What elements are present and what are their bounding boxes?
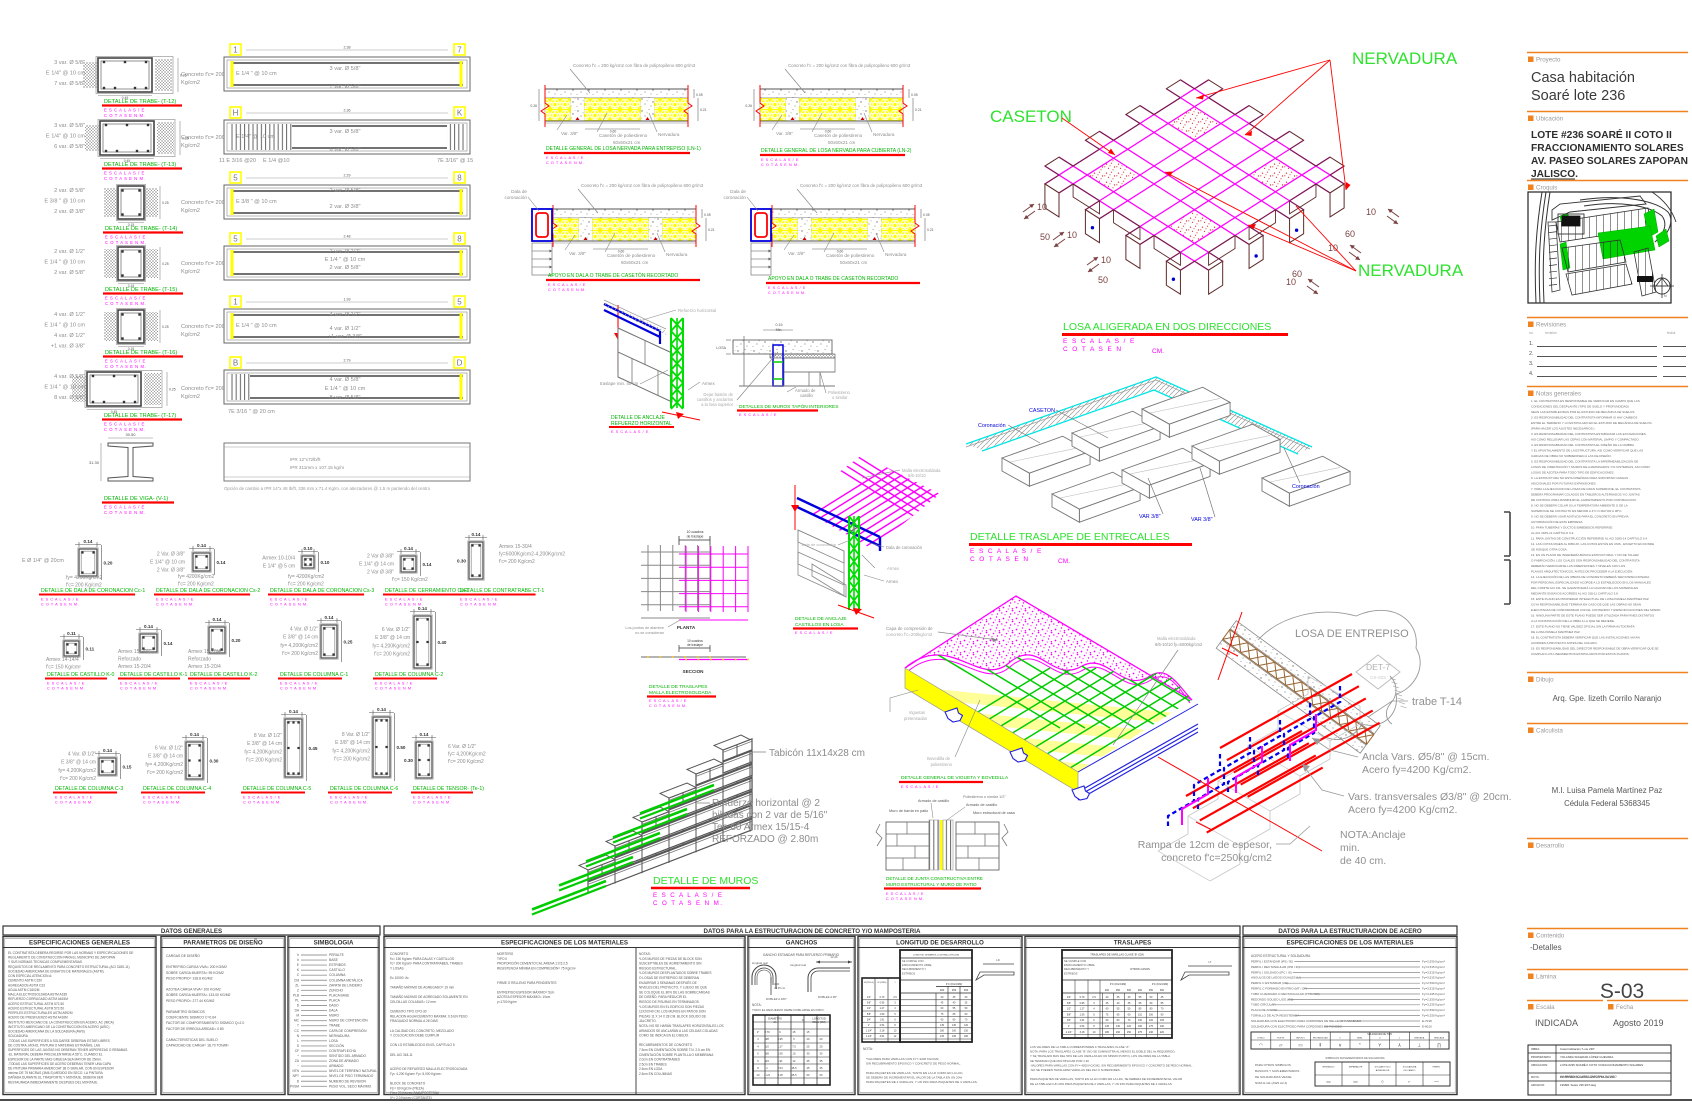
- svg-text:3.18: 3.18: [880, 1030, 885, 1033]
- svg-text:CON ESPECIAL ATENCION A:: CON ESPECIAL ATENCION A:: [8, 974, 52, 978]
- svg-text:RECUBRIMIENTO Y: RECUBRIMIENTO Y: [1064, 967, 1089, 971]
- svg-text:1/2": 1/2": [1067, 1008, 1071, 1011]
- svg-text:DETALLE DE CASTILLO K-2: DETALLE DE CASTILLO K-2: [190, 672, 257, 678]
- svg-text:6/6-10/10: 6/6-10/10: [908, 473, 926, 478]
- svg-text:DEBERA PROGRAMAR COLADOS EN TA: DEBERA PROGRAMAR COLADOS EN TABLEROS ALT…: [1531, 493, 1640, 497]
- svg-text:DEBERÁN VERIFICARSE LAS DIMEN: DEBERÁN VERIFICARSE LAS DIMENSIONES Y NI…: [1531, 564, 1625, 568]
- svg-text:PARA PAQUETES DE 2 VARILLAS, Y: PARA PAQUETES DE 2 VARILLAS, Y UN 33% PA…: [866, 1080, 978, 1084]
- svg-text:Croquis: Croquis: [1536, 185, 1557, 192]
- svg-text:PARAMETRO SISMICOS: PARAMETRO SISMICOS: [166, 1010, 205, 1014]
- svg-text:SENTIDO DEL ARMADO: SENTIDO DEL ARMADO: [329, 1054, 367, 1058]
- svg-text:10 cuadros: 10 cuadros: [687, 530, 704, 534]
- svg-text:REFUERZO CORRUGADO ASTM A615M: REFUERZO CORRUGADO ASTM A615M: [8, 997, 68, 1001]
- svg-text:110: 110: [1138, 1013, 1143, 1016]
- svg-text:C O T A S E N M.: C O T A S E N M.: [548, 288, 586, 292]
- svg-text:30.50: 30.50: [125, 432, 136, 437]
- svg-text:4 var. Ø 1/2": 4 var. Ø 1/2": [330, 326, 361, 332]
- svg-text:Ø (CMS): Ø (CMS): [878, 982, 887, 984]
- svg-text:3/8": 3/8": [1067, 1002, 1071, 1005]
- svg-text:E-6010: E-6010: [1422, 1024, 1432, 1028]
- svg-text:fy= 4,200Kg/cm2: fy= 4,200Kg/cm2: [448, 752, 486, 758]
- svg-text:CON LO ESTABLECIDO EN EL CAPIT: CON LO ESTABLECIDO EN EL CAPITULO 5: [390, 1043, 455, 1047]
- svg-text:CM.: CM.: [1058, 558, 1070, 565]
- svg-text:7 var. Ø 5/8": 7 var. Ø 5/8": [330, 84, 361, 90]
- svg-text:S: S: [297, 1044, 299, 1048]
- svg-text:CORDO: CORDO: [1257, 1037, 1265, 1039]
- svg-text:ACORDES A PROYECTO ANTES DEL C: ACORDES A PROYECTO ANTES DEL COLADO.: [1531, 641, 1598, 645]
- svg-text:Ancla Vars. Ø5/8" @ 15cm.: Ancla Vars. Ø5/8" @ 15cm.: [1362, 751, 1489, 763]
- svg-text:C O T A S E N M.: C O T A S E N M.: [41, 603, 79, 607]
- svg-text:8 var. Ø 5/8": 8 var. Ø 5/8": [330, 395, 361, 401]
- svg-text:3.: 3.: [1529, 361, 1534, 367]
- svg-text:TRABE: TRABE: [329, 1024, 341, 1028]
- svg-text:CARACTERISTICAS DEL SUELO: CARACTERISTICAS DEL SUELO: [166, 1038, 218, 1042]
- svg-text:11X20X40 CM. LOS MUROS EN PATI: 11X20X40 CM. LOS MUROS EN PATIOS SON: [639, 1010, 706, 1014]
- svg-text:ANGULOS DE LADOS IGUALES (LI): ANGULOS DE LADOS IGUALES (LI): [1251, 976, 1301, 980]
- svg-text:Nervadura: Nervadura: [666, 252, 688, 257]
- svg-text:1.: 1.: [1529, 341, 1534, 347]
- svg-text:2 Var. Ø 3/8": 2 Var. Ø 3/8": [157, 551, 185, 557]
- svg-text:E S C A L A S / E: E S C A L A S / E: [768, 286, 806, 290]
- svg-text:2.54: 2.54: [880, 1024, 885, 1027]
- svg-text:6 Var. Ø 1/2": 6 Var. Ø 1/2": [448, 744, 476, 750]
- svg-text:0.14: 0.14: [404, 546, 413, 551]
- svg-text:ACERO ESTRUCTURAL ASTM 572-50: ACERO ESTRUCTURAL ASTM 572-50: [8, 1006, 64, 1010]
- svg-text:4 var. Ø 1/2": 4 var. Ø 1/2": [54, 333, 85, 339]
- svg-text:2 var. Ø 5/8": 2 var. Ø 5/8": [54, 188, 85, 194]
- svg-text:E S C A L A S / E: E S C A L A S / E: [649, 699, 687, 703]
- svg-text:E S C A L A S / E: E S C A L A S / E: [55, 796, 93, 800]
- svg-text:DETALLE TRASLAPE DE ENTRECALLE: DETALLE TRASLAPE DE ENTRECALLES: [970, 531, 1170, 543]
- svg-text:Casa habitación: Casa habitación: [1531, 70, 1635, 86]
- svg-text:RESISTENCIA MÍNIMA EN COMPRESI: RESISTENCIA MÍNIMA EN COMPRESIÓN= 75 Kg/…: [497, 965, 576, 970]
- svg-text:Casa habitación "Lote 236": Casa habitación "Lote 236": [1560, 1047, 1595, 1051]
- svg-text:175: 175: [1149, 1025, 1154, 1028]
- svg-text:2.54: 2.54: [777, 1066, 783, 1070]
- svg-text:JALISCO.: JALISCO.: [1531, 169, 1578, 180]
- svg-text:M: M: [296, 1014, 299, 1018]
- svg-text:NUMERO DE REVISION: NUMERO DE REVISION: [329, 1079, 366, 1083]
- svg-text:50x60x21 cm: 50x60x21 cm: [621, 260, 648, 265]
- svg-text:fy= 4,200Kg/cm2: fy= 4,200Kg/cm2: [145, 762, 183, 768]
- svg-text:Reforzado: Reforzado: [118, 657, 141, 663]
- svg-text:de traslape: de traslape: [687, 535, 704, 539]
- svg-text:Kg/cm2: Kg/cm2: [181, 80, 200, 86]
- svg-text:SOLDADURA DE TIPO: SOLDADURA DE TIPO: [1367, 1033, 1392, 1036]
- svg-text:VAR 3/8": VAR 3/8": [1139, 514, 1161, 520]
- svg-text:1.59: 1.59: [880, 1013, 885, 1016]
- svg-text:C O T A S E N M.: C O T A S E N M.: [156, 603, 194, 607]
- svg-text:PIEZAS 11 X 14 X 28 CM. BLOCK: PIEZAS 11 X 14 X 28 CM. BLOCK SOLIDO DE: [639, 1014, 706, 1018]
- svg-text:fy= 4200Kg/cm2: fy= 4200Kg/cm2: [288, 574, 324, 580]
- svg-text:5/8": 5/8": [1067, 1013, 1071, 1016]
- svg-text:E S C A L A S / E: E S C A L A S / E: [546, 156, 584, 160]
- svg-text:LOSA: LOSA: [716, 346, 726, 350]
- svg-text:ACERO DE REFUERZO MALLA E: ACERO DE REFUERZO MALLA ELECTROSOLDADA: [390, 1067, 468, 1071]
- svg-text:Concreto f'c = 200 kg/cm2 con: Concreto f'c = 200 kg/cm2 con fibra de p…: [573, 63, 696, 68]
- svg-text:TIPO II: TIPO II: [497, 957, 507, 961]
- svg-text:0.40: 0.40: [438, 640, 447, 645]
- svg-text:C O T A S E N M.: C O T A S E N M.: [105, 240, 146, 245]
- svg-text:ENTREPISO ESPESOR MÁXIM: ENTREPISO ESPESOR MÁXIMO= 5cm: [497, 990, 555, 994]
- svg-text:MORTERO: MORTERO: [497, 952, 514, 956]
- svg-text:DETALLE DE COLUMNA C-3: DETALLE DE COLUMNA C-3: [55, 786, 123, 792]
- svg-text:+1 var. Ø 3/8": +1 var. Ø 3/8": [328, 334, 362, 340]
- svg-text:revisión: revisión: [1545, 331, 1557, 335]
- svg-text:PLACA: PLACA: [329, 998, 341, 1002]
- svg-text:7.5: 7.5: [792, 1044, 796, 1048]
- svg-text:AGREGADOS ASTM C33: AGREGADOS ASTM C33: [8, 983, 45, 987]
- svg-text:Vars. transversales Ø3/8" @ 20: Vars. transversales Ø3/8" @ 20cm.: [1348, 791, 1512, 803]
- svg-text:PERFIL C FORMADO EN FRIO (MT /: PERFIL C FORMADO EN FRIO (MT / CF): [1251, 987, 1307, 991]
- svg-text:SECCION: SECCION: [683, 669, 705, 674]
- svg-text:MALLA ELECTROSOLDADA: MALLA ELECTROSOLDADA: [649, 690, 712, 696]
- svg-text:Reforzado: Reforzado: [188, 657, 211, 663]
- svg-text:JALCRETO.: JALCRETO.: [639, 1019, 657, 1023]
- svg-text:Coronación: Coronación: [1292, 484, 1320, 490]
- svg-text:Concreto f'c= 200: Concreto f'c= 200: [181, 135, 225, 141]
- svg-text:1.59: 1.59: [1080, 1013, 1085, 1016]
- svg-text:NOTA: NO SE HARÁN TRASLAPES HO: NOTA: NO SE HARÁN TRASLAPES HORIZONTALES…: [639, 1024, 724, 1028]
- svg-text:-TODAS LAS SUPERFICIES DE ACER: -TODAS LAS SUPERFICIES DE ACERO DEBERAN …: [8, 1062, 112, 1066]
- svg-text:120: 120: [1149, 1019, 1154, 1022]
- svg-text:Armex 15-20/4: Armex 15-20/4: [118, 664, 151, 670]
- svg-text:FACTOR DE COMPORTAMIENTO SISMI: FACTOR DE COMPORTAMIENTO SISMICO Q=2.0: [166, 1021, 244, 1025]
- svg-text:3.18: 3.18: [777, 1073, 783, 1077]
- svg-text:3.81: 3.81: [880, 1035, 885, 1038]
- svg-text:1": 1": [1068, 1025, 1070, 1028]
- svg-text:CONCRETO: CONCRETO: [390, 952, 409, 956]
- svg-text:E S C A L A S / E: E S C A L A S / E: [143, 796, 181, 800]
- svg-text:E S C A L A S / E: E S C A L A S / E: [1063, 338, 1136, 345]
- svg-text:Fy=2,530 Kg/cm²: Fy=2,530 Kg/cm²: [1422, 960, 1445, 964]
- svg-text:LONGITUD DE DESARROLLO: LONGITUD DE DESARROLLO: [896, 940, 984, 947]
- svg-text:145: 145: [1105, 1025, 1110, 1028]
- svg-text:RELACION AGUA/CEMENTO MAXIMA:: RELACION AGUA/CEMENTO MAXIMA: 0.6 EN PES…: [390, 1014, 468, 1018]
- svg-text:130: 130: [1116, 1025, 1121, 1028]
- svg-text:Soaré lote 236: Soaré lote 236: [1531, 88, 1625, 104]
- svg-text:hiladas con 2 var de 5/16": hiladas con 2 var de 5/16": [712, 810, 828, 821]
- svg-text:250: 250: [1116, 989, 1121, 992]
- svg-text:300: 300: [1160, 989, 1165, 992]
- svg-text:C O T A S E N M.: C O T A S E N M.: [143, 801, 181, 805]
- svg-text:NOTA:: NOTA:: [752, 1003, 762, 1007]
- svg-text:0.26: 0.26: [745, 104, 752, 108]
- svg-text:2 Var. Ø 3/8": 2 Var. Ø 3/8": [157, 568, 185, 574]
- svg-text:FRACCIONAMIENTO SOLARES: FRACCIONAMIENTO SOLARES: [1531, 143, 1684, 154]
- svg-text:DETALLE DE ANCLAJE: DETALLE DE ANCLAJE: [795, 616, 847, 622]
- svg-text:0.25: 0.25: [344, 640, 353, 645]
- svg-text:B: B: [233, 359, 238, 368]
- svg-text:E 1/4 " @ 10 cm: E 1/4 " @ 10 cm: [44, 323, 85, 329]
- svg-text:SIN RECUBRIMIENTO EPOXICO Y CO: SIN RECUBRIMIENTO EPOXICO Y CONCRETO DE …: [866, 1062, 961, 1066]
- svg-text:8 var. Ø 5/8": 8 var. Ø 5/8": [54, 395, 85, 401]
- svg-text:CASTILLO: CASTILLO: [329, 968, 345, 972]
- svg-text:E-7018: E-7018: [1422, 1019, 1432, 1023]
- svg-text:MEDIANTE ENSAYOS ACORDES AL AC: MEDIANTE ENSAYOS ACORDES AL ACI 318-11 C…: [1531, 592, 1619, 596]
- svg-text:=6.35 cm.: =6.35 cm.: [774, 986, 786, 990]
- svg-text:Dala de coronación: Dala de coronación: [886, 545, 923, 550]
- svg-text:SUPERFICIES DE LAS JUNTAS NO D: SUPERFICIES DE LAS JUNTAS NO DEBERAN TEN…: [8, 1048, 128, 1052]
- svg-text:300: 300: [964, 988, 969, 992]
- svg-text:E 3/8" @ 14 cm: E 3/8" @ 14 cm: [283, 635, 318, 641]
- svg-text:CIMENTACIÓN SOBRE PLANTILLA O: CIMENTACIÓN SOBRE PLANTILLA O MEMBRANA: [639, 1052, 714, 1057]
- svg-text:-EL MATERIAL DEBERA PRECALENTA: -EL MATERIAL DEBERA PRECALENTARSE A 56°C…: [8, 1053, 103, 1057]
- svg-text:Los puntos de alambre: Los puntos de alambre: [625, 626, 664, 630]
- svg-text:Y COLOCACION DEBE CUMPLIR: Y COLOCACION DEBE CUMPLIR: [390, 1034, 440, 1038]
- svg-text:C O T A S E N: C O T A S E N: [970, 556, 1030, 563]
- svg-text:DALA: DALA: [329, 1009, 338, 1013]
- svg-text:PESO PROPIO= 277.44 KG/M2: PESO PROPIO= 277.44 KG/M2: [166, 999, 214, 1003]
- svg-text:C O T A S E N M.: C O T A S E N M.: [104, 176, 145, 181]
- svg-text:CAPACIDAD DE CARGA= 18.70 TON/: CAPACIDAD DE CARGA= 18.70 TON/M²: [166, 1044, 229, 1048]
- svg-text:Agosto 2019: Agosto 2019: [1613, 1018, 1664, 1028]
- svg-text:CELDILLAS COLADAS= 12 mm: CELDILLAS COLADAS= 12 mm: [390, 1000, 436, 1004]
- svg-text:fy= 4,200Kg/cm2: fy= 4,200Kg/cm2: [372, 643, 410, 649]
- svg-text:Viguetas: Viguetas: [909, 710, 925, 715]
- svg-text:160: 160: [1116, 1031, 1121, 1034]
- svg-text:F'm= 20 Kg/cm² (MAMPOSTERÍA): F'm= 20 Kg/cm² (MAMPOSTERÍA): [390, 1091, 439, 1095]
- svg-text:D: D: [802, 1018, 804, 1022]
- svg-text:E S C A L A S / E: E S C A L A S / E: [270, 598, 308, 602]
- svg-text:APOYO EN DALA O TRABE DE CASET: APOYO EN DALA O TRABE DE CASETÓN RECORTA…: [548, 272, 678, 279]
- svg-text:BASICOS Y SUPLEMENTARIOS: BASICOS Y SUPLEMENTARIOS: [1255, 1069, 1299, 1073]
- svg-text:1.91: 1.91: [880, 1018, 885, 1021]
- svg-text:Fy=3,515 Kg/cm²: Fy=3,515 Kg/cm²: [1422, 987, 1445, 991]
- svg-text:F'C (KG/CM2): F'C (KG/CM2): [1152, 982, 1168, 986]
- svg-text:16. NINGUNA PARTE DE ESTE PLAN: 16. NINGUNA PARTE DE ESTE PLANO PUEDE SE…: [1531, 614, 1654, 618]
- svg-text:Dala de coronación: Dala de coronación: [802, 542, 836, 547]
- svg-text:PARAMETROS DE DISEÑO: PARAMETROS DE DISEÑO: [183, 940, 262, 947]
- svg-text:INSTITUTO MEXICANO DE LA CONST: INSTITUTO MEXICANO DE LA CONSTRUCCION EN…: [8, 1020, 114, 1024]
- svg-text:Y SE TRASLAPA MAS DEL 50% DE L: Y SE TRASLAPA MAS DEL 50% DE LAS VARILLA…: [1030, 1054, 1170, 1058]
- svg-text:50: 50: [1098, 275, 1108, 285]
- svg-text:DE CONTROL PARA DISMINUIR EL A: DE CONTROL PARA DISMINUIR EL AGRIETAMIEN…: [1531, 498, 1637, 502]
- svg-text:0.30: 0.30: [404, 758, 413, 763]
- svg-text:4 db: 4 db: [774, 982, 780, 986]
- svg-text:NOTA: PARA LOS TRASLAPES CLAS: NOTA: PARA LOS TRASLAPES CLASE "B" (NO S…: [1030, 1050, 1176, 1054]
- svg-text:ACERO ESTRUCTURAL ASTM 572-50: ACERO ESTRUCTURAL ASTM 572-50: [8, 1002, 64, 1006]
- svg-text:DETALLE DE COLUMNA C-4: DETALLE DE COLUMNA C-4: [143, 786, 211, 792]
- svg-text:2.38: 2.38: [344, 46, 351, 50]
- svg-text:5. ES RESPONSABILIDAD DEL CON: 5. ES RESPONSABILIDAD DEL CONTRATISTA LA…: [1531, 460, 1638, 464]
- svg-text:0.14: 0.14: [144, 624, 153, 629]
- svg-text:Concreto f'c = 200 kg/cm2 con: Concreto f'c = 200 kg/cm2 con fibra de p…: [581, 183, 704, 188]
- svg-text:2.54: 2.54: [1080, 1025, 1085, 1028]
- svg-text:IPR 311mm x 107.15 kg/m: IPR 311mm x 107.15 kg/m: [290, 465, 344, 470]
- svg-text:8 Var. Ø 1/2": 8 Var. Ø 1/2": [342, 732, 370, 738]
- svg-text:f'c= 200 Kg/cm² PARA CONTRATR: f'c= 200 Kg/cm² PARA CONTRATRABES, TRABE…: [390, 962, 463, 966]
- svg-text:LOS VALORES DE LA TABLA CORRES: LOS VALORES DE LA TABLA CORRESPONDEN A T…: [1030, 1045, 1129, 1049]
- svg-text:9. NO SE DEBERÁ USAR ADITIVOS: 9. NO SE DEBERÁ USAR ADITIVOS PARA EL CO…: [1531, 515, 1628, 519]
- svg-text:MALLA ELECTROSOLDADA ASTM A185: MALLA ELECTROSOLDADA ASTM A185: [8, 993, 67, 997]
- svg-text:2 var. Ø 1/2": 2 var. Ø 1/2": [54, 249, 85, 255]
- svg-text:V*= 2.0 Kg/cm² (CORTANTE): V*= 2.0 Kg/cm² (CORTANTE): [390, 1096, 432, 1100]
- svg-text:E 1/4" @ 5 cm: E 1/4" @ 5 cm: [263, 564, 295, 570]
- svg-text:0.95: 0.95: [777, 1037, 783, 1041]
- svg-text:DEL ACI 318-11: DEL ACI 318-11: [390, 1053, 413, 1057]
- svg-text:0.21: 0.21: [927, 228, 934, 232]
- svg-text:Tec 60 Armex 15/15-4: Tec 60 Armex 15/15-4: [712, 822, 810, 833]
- svg-text:SE INDIQUE OTRA COSA.: SE INDIQUE OTRA COSA.: [1531, 548, 1568, 552]
- svg-text:E S C A L A S / E: E S C A L A S / E: [104, 171, 145, 176]
- svg-text:150: 150: [1127, 1031, 1132, 1034]
- svg-text:145: 145: [940, 1024, 945, 1027]
- svg-text:3/4": 3/4": [1067, 1019, 1071, 1022]
- svg-text:0.50: 0.50: [397, 745, 406, 750]
- svg-text:Cédula Federal 5368345: Cédula Federal 5368345: [1564, 799, 1650, 808]
- svg-text:3/4: 3/4: [765, 1059, 769, 1063]
- svg-text:+1 var. Ø 3/8": +1 var. Ø 3/8": [51, 344, 85, 350]
- svg-text:Armex 10-10/4: Armex 10-10/4: [262, 556, 295, 562]
- svg-text:1: 1: [233, 298, 238, 307]
- svg-text:PLANOS ARQUITECTONICOS, ANTES: PLANOS ARQUITECTONICOS, ANTES DE PROCEDE…: [1531, 569, 1633, 574]
- svg-text:⌐: ⌐: [1408, 1079, 1411, 1084]
- svg-text:5: 5: [233, 235, 238, 244]
- svg-text:SOLDADURA: SOLDADURA: [8, 1034, 29, 1038]
- svg-text:10: 10: [1067, 230, 1077, 240]
- svg-text:0.14: 0.14: [217, 560, 226, 565]
- svg-text:4 Var. Ø 1/2": 4 Var. Ø 1/2": [68, 752, 96, 758]
- svg-text:1/2: 1/2: [765, 1044, 769, 1048]
- svg-text:1.91: 1.91: [777, 1059, 783, 1063]
- svg-text:D: D: [457, 359, 463, 368]
- svg-text:C O T A S E N M.: C O T A S E N M.: [460, 603, 498, 607]
- svg-text:CS-S03: CS-S03: [1370, 675, 1386, 680]
- svg-text:concreto f'c=200kg/cm2: concreto f'c=200kg/cm2: [886, 632, 933, 637]
- svg-text:160: 160: [952, 1030, 957, 1033]
- svg-text:DATOS PARA LA ESTRUCTURACION D: DATOS PARA LA ESTRUCTURACION DE CONCRETO…: [704, 928, 921, 935]
- svg-text:0.10: 0.10: [321, 560, 330, 565]
- svg-text:NTN: NTN: [292, 1069, 299, 1073]
- svg-text:COLUMNA: COLUMNA: [329, 973, 346, 977]
- svg-text:E 1/4 " @ 10 cm: E 1/4 " @ 10 cm: [236, 323, 277, 329]
- svg-text:6. LA ESTRUCTURA NO ESTA DISE: 6. LA ESTRUCTURA NO ESTA DISEÑADA PARA S…: [1531, 475, 1628, 480]
- svg-text:h: h: [297, 953, 299, 957]
- svg-text:Tabicón 11x14x28 cm: Tabicón 11x14x28 cm: [769, 748, 865, 759]
- svg-text:E S C A L A S / E: E S C A L A S / E: [190, 682, 228, 686]
- svg-text:YOLANDA SOLEDAD LÓPEZ GUEVARA: YOLANDA SOLEDAD LÓPEZ GUEVARA: [1560, 1054, 1613, 1059]
- svg-text:GANCHOS: GANCHOS: [786, 940, 818, 947]
- svg-text:PLANTA: PLANTA: [677, 625, 696, 630]
- svg-text:Casetón de poliestireno: Casetón de poliestireno: [814, 133, 863, 138]
- svg-text:DETALLE DE CONTRATRABE CT-1: DETALLE DE CONTRATRABE CT-1: [460, 588, 544, 594]
- svg-text:E 1/4 " @ 10 cm: E 1/4 " @ 10 cm: [236, 71, 277, 77]
- svg-text:REQUISITOS DE REGLAMENTO PARA: REQUISITOS DE REGLAMENTO PARA CONCRETO E…: [8, 965, 130, 969]
- svg-text:Armex 15-20/4: Armex 15-20/4: [188, 664, 221, 670]
- svg-text:4 var. Ø 5/8": 4 var. Ø 5/8": [330, 377, 361, 383]
- svg-text:2 var. Ø 3/8": 2 var. Ø 3/8": [330, 204, 361, 210]
- svg-text:10: 10: [1366, 207, 1376, 217]
- svg-text:fy= 4,200Kg/cm2: fy= 4,200Kg/cm2: [280, 643, 318, 649]
- svg-text:Armex 14-14/4: Armex 14-14/4: [46, 657, 79, 663]
- svg-text:de 40 cm.: de 40 cm.: [1340, 855, 1386, 867]
- svg-text:▭: ▭: [1298, 1043, 1303, 1048]
- svg-text:E 1/4" @ 10 cm: E 1/4" @ 10 cm: [150, 559, 185, 565]
- svg-text:PERFILES ESTRUCTURALES ASTM A9: PERFILES ESTRUCTURALES ASTM A992M: [8, 1011, 73, 1015]
- svg-text:Var. 3/8": Var. 3/8": [788, 251, 805, 256]
- svg-text:NOTA:: NOTA:: [863, 1047, 873, 1051]
- svg-text:S-03: S-03: [1600, 980, 1644, 1003]
- svg-text:IPR 12"x72lb/ft: IPR 12"x72lb/ft: [290, 457, 321, 462]
- svg-text:AGUA ASTM C1602M: AGUA ASTM C1602M: [8, 988, 40, 992]
- svg-text:0.11: 0.11: [86, 647, 95, 652]
- svg-text:0.26: 0.26: [530, 104, 537, 108]
- svg-text:C O T A S E N M.: C O T A S E N M.: [886, 897, 924, 901]
- svg-text:fy= 4,200Kg/cm2: fy= 4,200Kg/cm2: [58, 768, 96, 774]
- svg-text:BISELADA: BISELADA: [1414, 1036, 1424, 1039]
- svg-text:E S C A L A S / E: E S C A L A S / E: [156, 598, 194, 602]
- svg-text:E 1/4 @10: E 1/4 @10: [263, 158, 290, 164]
- svg-text:0.30: 0.30: [457, 559, 466, 564]
- svg-text:MURO ESTRUCTURAL Y MURO DE PAT: MURO ESTRUCTURAL Y MURO DE PATIO: [886, 882, 977, 887]
- svg-text:7E 3/16" @ 15: 7E 3/16" @ 15: [437, 158, 473, 164]
- svg-text:0.30: 0.30: [210, 759, 219, 764]
- svg-text:POR PERSONAL ESPECIALIZADO ACO: POR PERSONAL ESPECIALIZADO ACORDE A LO E…: [1531, 581, 1651, 585]
- svg-text:C O T A S E N M.: C O T A S E N M.: [104, 510, 145, 515]
- svg-text:Muro de barda en patio: Muro de barda en patio: [889, 809, 928, 813]
- svg-text:ESPECIFICACIONES DE LOS MATERI: ESPECIFICACIONES DE LOS MATERIALES: [501, 940, 628, 947]
- svg-text:7: 7: [457, 46, 462, 55]
- svg-text:4 Var. Ø 1/2": 4 Var. Ø 1/2": [290, 627, 318, 633]
- svg-text:E 3/8" @ 14 cm: E 3/8" @ 14 cm: [247, 741, 282, 747]
- svg-text:REGLAMENTO DE CONSTRUCCION PAR: REGLAMENTO DE CONSTRUCCION PARA EL MUNIC…: [8, 956, 116, 960]
- svg-text:OTROS CASOS: OTROS CASOS: [1130, 967, 1150, 971]
- svg-text:AUTORIZACIÓN DE ESTA EMPRESA.: AUTORIZACIÓN DE ESTA EMPRESA.: [1531, 519, 1583, 524]
- svg-text:Malla electrosoldada: Malla electrosoldada: [1157, 636, 1196, 641]
- svg-text:-NO SE PUEDEN TRASLAPAR VARILL: -NO SE PUEDEN TRASLAPAR VARILLAS DEL #12…: [1030, 1068, 1121, 1072]
- svg-text:2 var. Ø 3/8": 2 var. Ø 3/8": [54, 209, 85, 215]
- svg-text:NERVADURA: NERVADURA: [1358, 261, 1464, 280]
- svg-text:DE COSTRA, MOHO, PINTURA O MAT: DE COSTRA, MOHO, PINTURA O MATERIAS EXTR…: [8, 1042, 100, 1047]
- svg-text:DETALLE DE JUNTA CONSTRUCTIVA: DETALLE DE JUNTA CONSTRUCTIVA ENTRE: [886, 876, 983, 881]
- svg-text:BISEL: BISEL: [1357, 1037, 1364, 1039]
- svg-text:H: H: [233, 109, 239, 118]
- svg-text:DADO: DADO: [329, 1004, 339, 1008]
- svg-text:~: ~: [297, 1064, 299, 1068]
- svg-text:NIVELES DEL PROYECTO, Y LUEGO: NIVELES DEL PROYECTO, Y LUEGO DE QUE: [639, 986, 707, 990]
- svg-text:castillo: castillo: [800, 393, 813, 398]
- svg-text:ESPECIFICACIONES DE LOS MATERI: ESPECIFICACIONES DE LOS MATERIALES: [1286, 940, 1413, 947]
- svg-text:ENTRE EL TERRENO Y LO ESTIPULA: ENTRE EL TERRENO Y LO ESTIPULADO EN EL E…: [1531, 421, 1652, 425]
- svg-text:coronación: coronación: [724, 195, 747, 200]
- svg-text:O LOSAS DE ENTREPISO SE DEBERA: O LOSAS DE ENTREPISO SE DEBERAN: [639, 976, 700, 980]
- svg-text:0.14: 0.14: [190, 732, 199, 737]
- svg-text:fecha: fecha: [1667, 331, 1675, 335]
- svg-text:4.: 4.: [1529, 371, 1534, 377]
- svg-text:3. ES RESPONSABILIDAD DEL CON: 3. ES RESPONSABILIDAD DEL CONTRATISTA ES…: [1531, 432, 1647, 436]
- svg-text:fy= 4,200Kg/cm2: fy= 4,200Kg/cm2: [244, 749, 282, 755]
- svg-text:Revisiones: Revisiones: [1536, 322, 1566, 329]
- svg-text:E S C A L A S / E: E S C A L A S / E: [105, 296, 146, 301]
- svg-text:F'C (KG/CM2): F'C (KG/CM2): [1110, 982, 1126, 986]
- svg-text:12. LAS COTAS RIGEN AL DIBUJO,: 12. LAS COTAS RIGEN AL DIBUJO, LAS COTAS…: [1531, 542, 1654, 546]
- svg-text:fy= 4,200Kg/cm2: fy= 4,200Kg/cm2: [332, 748, 370, 754]
- svg-text:7E 3/16 " @ 20 cm: 7E 3/16 " @ 20 cm: [228, 409, 275, 415]
- svg-text:Lámina: Lámina: [1536, 974, 1557, 981]
- svg-text:Refuerzo horizontal @ 2: Refuerzo horizontal @ 2: [712, 798, 820, 809]
- svg-text:2.36: 2.36: [344, 109, 351, 113]
- svg-text:Kg/cm2: Kg/cm2: [181, 143, 200, 149]
- svg-text:DETALLE GENERAL DE VIGUETA Y B: DETALLE GENERAL DE VIGUETA Y BOVEDILLA: [901, 775, 1009, 781]
- svg-text:▭: ▭: [1326, 1079, 1331, 1084]
- svg-text:PL: PL: [295, 998, 299, 1002]
- svg-text:2.48: 2.48: [344, 235, 351, 239]
- svg-text:E S C A L A S / E: E S C A L A S / E: [886, 892, 924, 896]
- svg-text:DETALLE DE DALA DE CORONACION: DETALLE DE DALA DE CORONACION Cs-3: [270, 588, 374, 594]
- svg-text:BLOCK DE CONCRETO: BLOCK DE CONCRETO: [390, 1082, 426, 1086]
- svg-text:RIESGO ESTRUCTURAL.: RIESGO ESTRUCTURAL.: [639, 966, 677, 970]
